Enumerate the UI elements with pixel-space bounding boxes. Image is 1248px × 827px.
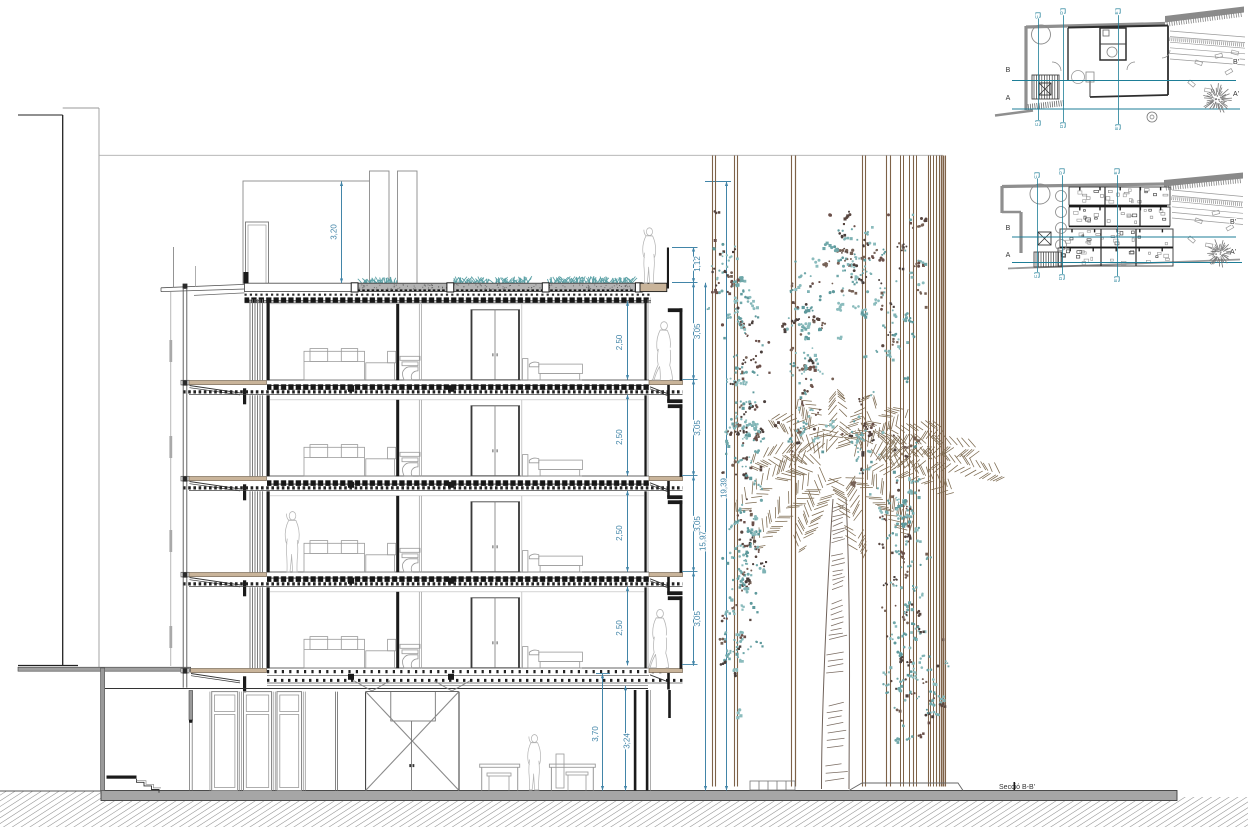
- svg-text:E': E': [1114, 10, 1119, 14]
- svg-text:2,50: 2,50: [615, 429, 624, 445]
- svg-text:B: B: [1006, 67, 1011, 74]
- svg-text:1,12: 1,12: [693, 256, 702, 272]
- svg-text:E': E': [1113, 170, 1118, 174]
- svg-text:3,05: 3,05: [693, 516, 702, 532]
- svg-text:3,05: 3,05: [693, 323, 702, 339]
- svg-text:A: A: [1006, 95, 1011, 102]
- svg-text:19,39: 19,39: [719, 477, 728, 498]
- svg-text:15,97: 15,97: [698, 530, 707, 551]
- svg-text:2,50: 2,50: [615, 525, 624, 541]
- svg-text:Secció B-B': Secció B-B': [999, 784, 1035, 791]
- svg-text:A': A': [1230, 249, 1236, 256]
- svg-text:E: E: [1113, 279, 1118, 282]
- svg-text:3,24: 3,24: [623, 733, 632, 749]
- svg-text:2,50: 2,50: [615, 620, 624, 636]
- svg-text:3,05: 3,05: [693, 420, 702, 436]
- svg-text:B: B: [1006, 225, 1011, 232]
- svg-text:3,70: 3,70: [591, 726, 600, 742]
- svg-text:B': B': [1230, 219, 1236, 226]
- svg-text:3,20: 3,20: [330, 224, 339, 240]
- svg-text:B': B': [1233, 59, 1239, 66]
- svg-text:3,05: 3,05: [693, 611, 702, 627]
- svg-text:A: A: [1006, 252, 1011, 259]
- svg-text:D': D': [1059, 10, 1064, 14]
- svg-text:C': C': [1033, 174, 1038, 178]
- svg-text:C': C': [1034, 14, 1039, 18]
- svg-text:2,50: 2,50: [615, 334, 624, 350]
- svg-text:E: E: [1114, 127, 1119, 130]
- svg-text:A': A': [1233, 91, 1239, 98]
- svg-text:D': D': [1058, 170, 1063, 174]
